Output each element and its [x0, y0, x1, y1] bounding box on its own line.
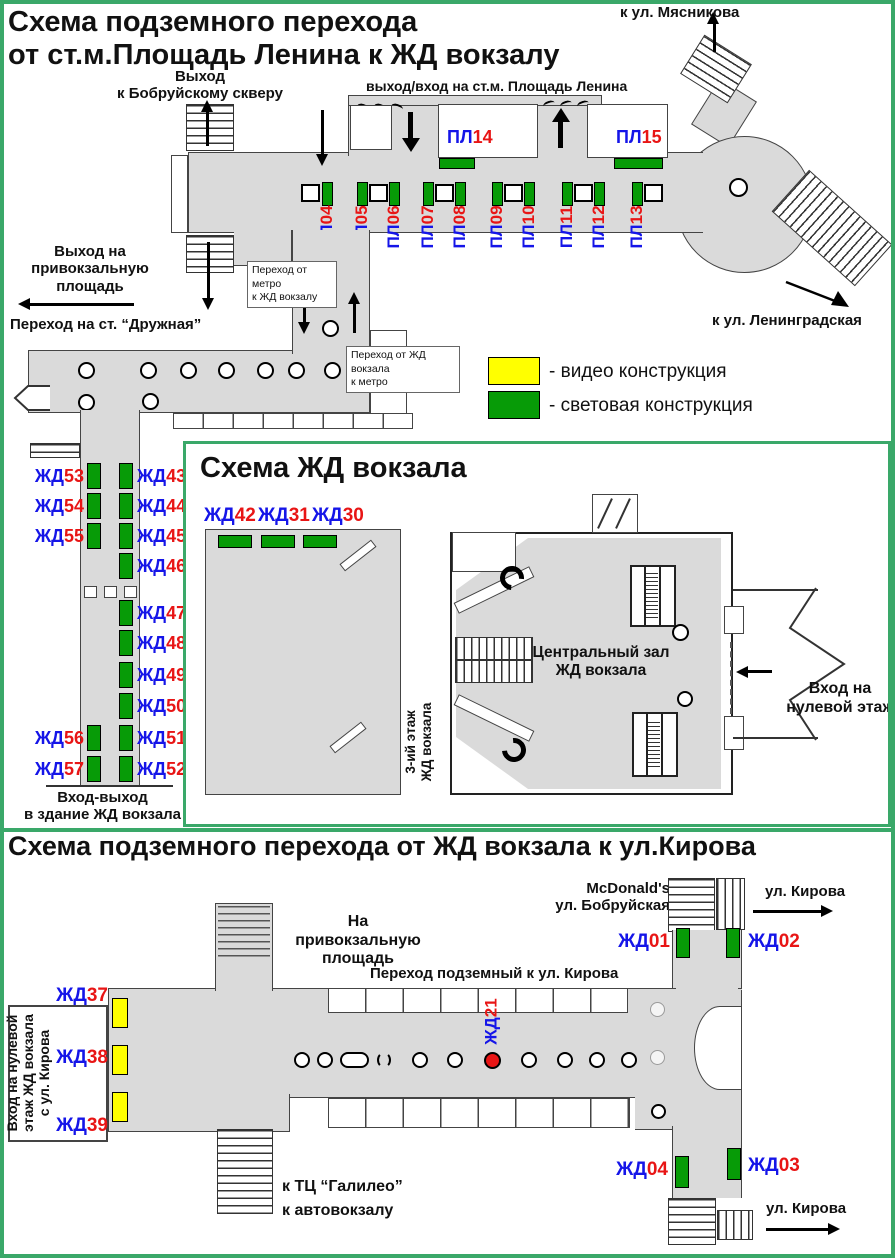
down-arrow-shaft [321, 110, 324, 156]
square-exit-arrow-icon [202, 298, 214, 310]
pillar [369, 184, 388, 202]
light-construction-pl15 [614, 158, 663, 169]
column [78, 362, 95, 379]
light-construction-zd45 [119, 523, 133, 549]
enter-up-arrow-shaft [558, 120, 563, 148]
door [104, 586, 117, 598]
kiosk-row [173, 413, 413, 429]
legend-video-swatch [488, 357, 540, 385]
door [84, 586, 97, 598]
sign-zd47: ЖД47 [137, 604, 186, 622]
sign-zd50: ЖД50 [137, 697, 186, 715]
myasnikova-arrow-shaft [713, 20, 716, 52]
column [322, 320, 339, 337]
legend-light-swatch [488, 391, 540, 419]
sign-pl12: ПЛ12 [591, 204, 607, 250]
exit-down-arrow-shaft [408, 112, 413, 140]
druzhnaya-label: Переход на ст. “Дружная” [10, 316, 201, 333]
pillar [301, 184, 320, 202]
sign-pl10: ПЛ10 [521, 204, 537, 250]
to-rail-arrow-icon [298, 322, 310, 334]
light-construction-zd47 [119, 600, 133, 626]
sign-zd43: ЖД43 [137, 467, 186, 485]
light-construction-zd49 [119, 662, 133, 688]
sign-zd45: ЖД45 [137, 527, 186, 545]
light-construction-pl07 [423, 182, 434, 206]
pillar [574, 184, 593, 202]
rail-to-metro-box: Переход от ЖД вокзала к метро [346, 346, 460, 393]
column [142, 393, 159, 410]
rotunda-column [729, 178, 748, 197]
bobruysky-up-arrow-shaft [206, 110, 209, 146]
sign-pl15: ПЛ15 [616, 128, 662, 146]
sign-pl06: ПЛ06 [386, 204, 402, 250]
column [257, 362, 274, 379]
druzhnaya-notch-arrow-icon [12, 383, 52, 413]
druzhnaya-arrow-shaft [28, 303, 134, 306]
square-exit-stairs [186, 235, 234, 273]
sign-zd57: ЖД57 [28, 760, 84, 778]
exit-down-arrow-icon [402, 138, 420, 152]
light-construction-zd51 [119, 725, 133, 751]
light-construction-pl13 [632, 182, 643, 206]
sign-zd46: ЖД46 [137, 557, 186, 575]
sign-pl11: ПЛ11 [559, 204, 575, 250]
legend-light-label: - световая конструкция [549, 395, 753, 417]
column [218, 362, 235, 379]
door [124, 586, 137, 598]
sign-pl08: ПЛ08 [452, 204, 468, 250]
sign-zd56: ЖД56 [28, 729, 84, 747]
bobruysky-exit-label: Выход к Бобруйскому скверу [95, 68, 305, 103]
light-construction-zd54 [87, 493, 101, 519]
metro-section-title: Схема подземного перехода от ст.м.Площад… [8, 6, 559, 73]
light-construction-zd48 [119, 630, 133, 656]
square-exit-arrow-shaft [207, 242, 210, 300]
light-construction-pl14 [439, 158, 475, 169]
column [288, 362, 305, 379]
light-construction-zd52 [119, 756, 133, 782]
station-entrance-line [46, 785, 173, 787]
light-construction-pl06 [389, 182, 400, 206]
sign-zd55: ЖД55 [28, 527, 84, 545]
column [140, 362, 157, 379]
station-door-label: Вход-выход в здание ЖД вокзала [15, 789, 190, 824]
light-construction-zd53 [87, 463, 101, 489]
sign-zd48: ЖД48 [137, 634, 186, 652]
light-construction-pl08 [455, 182, 466, 206]
sign-zd51: ЖД51 [137, 729, 186, 747]
sign-zd52: ЖД52 [137, 760, 186, 778]
sign-zd44: ЖД44 [137, 497, 186, 515]
column [78, 394, 95, 411]
light-construction-pl11 [562, 182, 573, 206]
column [180, 362, 197, 379]
light-construction-pl09 [492, 182, 503, 206]
light-construction-zd56 [87, 725, 101, 751]
leningradskaya-arrow-icon [783, 278, 858, 313]
down-arrow-icon [316, 154, 328, 166]
to-metro-arrow-shaft [353, 303, 356, 333]
metro-room [350, 105, 392, 150]
leningradskaya-street-label: к ул. Ленинградская [712, 312, 862, 329]
sign-pl07: ПЛ07 [420, 204, 436, 250]
light-construction-pl04 [322, 182, 333, 206]
pillar [504, 184, 523, 202]
druzhnaya-arrow-icon [18, 298, 30, 310]
light-construction-zd55 [87, 523, 101, 549]
light-construction-zd43 [119, 463, 133, 489]
light-construction-pl12 [594, 182, 605, 206]
light-construction-zd50 [119, 693, 133, 719]
light-construction-zd44 [119, 493, 133, 519]
legend-video-label: - видео конструкция [549, 361, 727, 383]
station-section-frame [183, 441, 891, 827]
light-construction-pl05 [357, 182, 368, 206]
kirova-section-frame [0, 828, 895, 1258]
sign-zd49: ЖД49 [137, 666, 186, 684]
light-construction-pl10 [524, 182, 535, 206]
metro-to-rail-box: Переход от метро к ЖД вокзалу [247, 261, 337, 308]
sign-pl09: ПЛ09 [489, 204, 505, 250]
side-room [171, 155, 188, 233]
column [324, 362, 341, 379]
sign-zd53: ЖД53 [28, 467, 84, 485]
metro-entrance-label: выход/вход на ст.м. Площадь Ленина [366, 78, 627, 94]
pillar [644, 184, 663, 202]
square-exit-label: Выход на привокзальную площадь [0, 243, 180, 295]
side-stairs [30, 443, 80, 458]
light-construction-zd57 [87, 756, 101, 782]
sign-pl13: ПЛ13 [629, 204, 645, 250]
sign-pl14: ПЛ14 [447, 128, 493, 146]
underpass-scheme-page: Схема подземного перехода от ст.м.Площад… [0, 0, 895, 1258]
sign-zd54: ЖД54 [28, 497, 84, 515]
myasnikova-street-label: к ул. Мясникова [620, 4, 739, 21]
light-construction-zd46 [119, 553, 133, 579]
pillar [435, 184, 454, 202]
